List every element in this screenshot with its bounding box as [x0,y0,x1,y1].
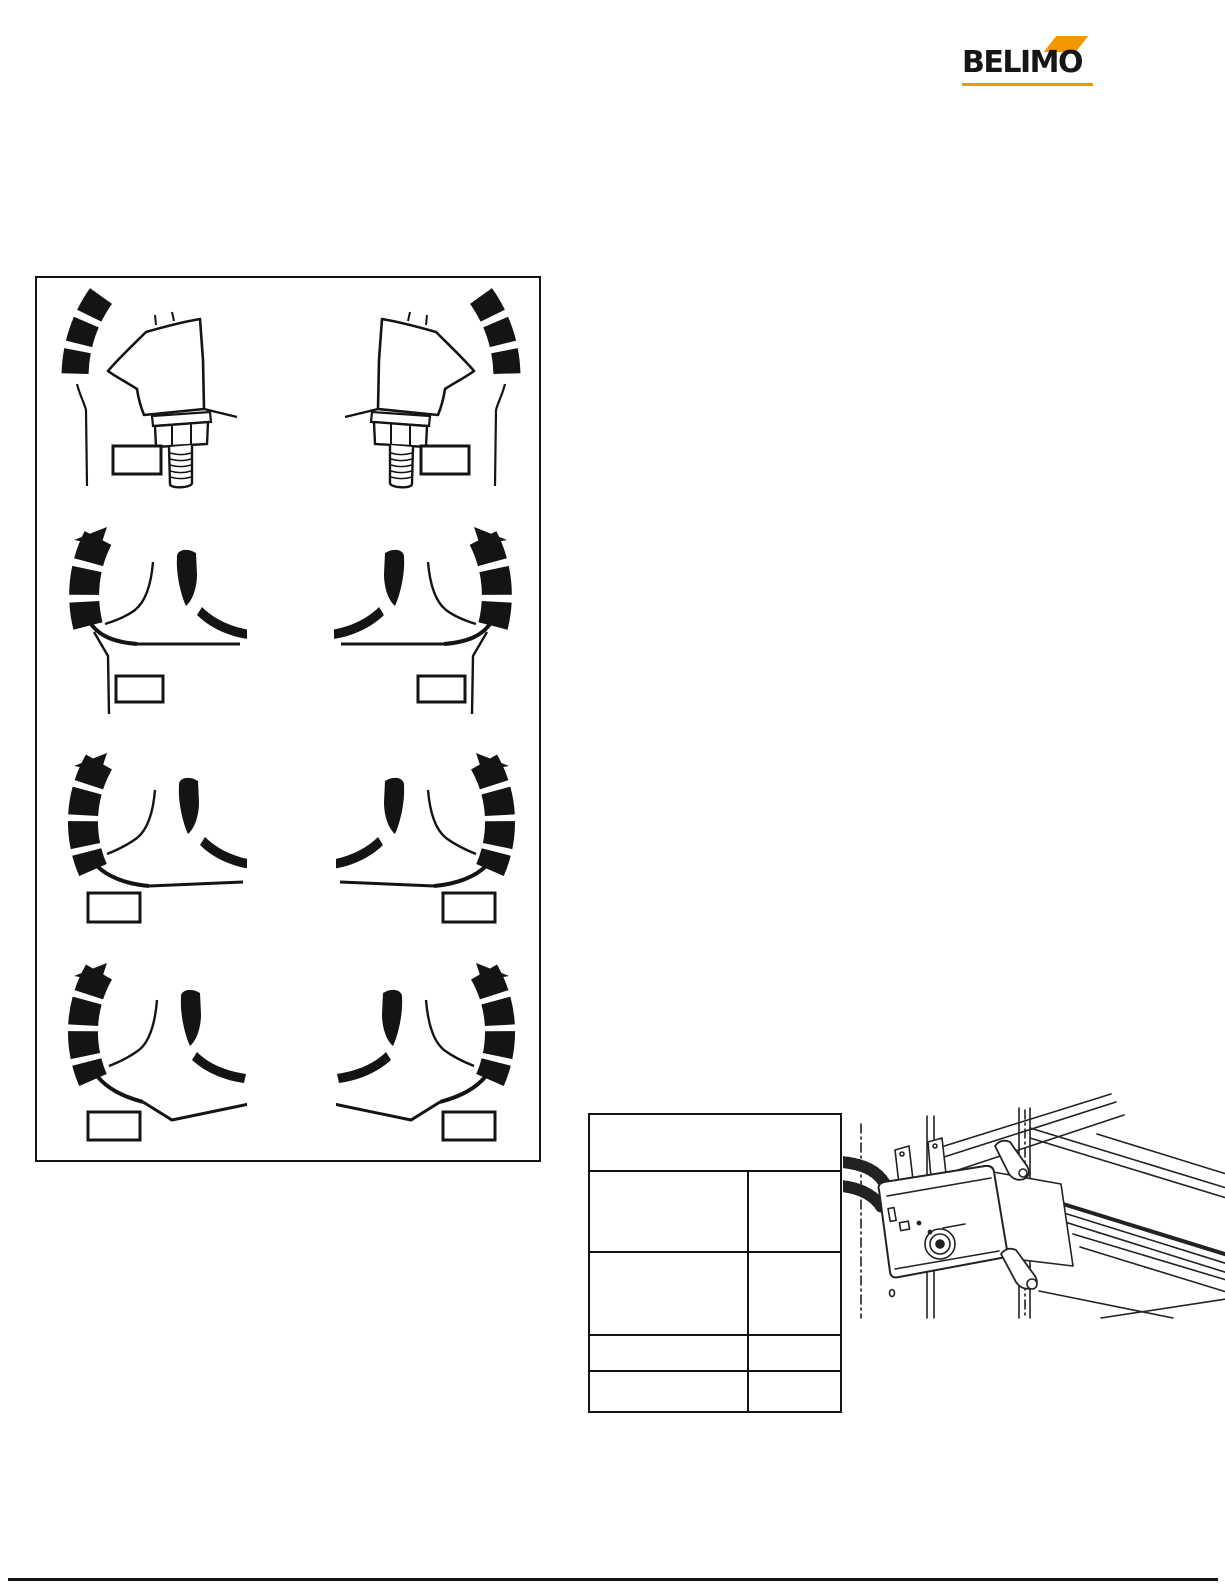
table-cell [589,1335,748,1371]
table-row [589,1371,841,1412]
scale-pointer-diagram-row2-right [334,516,524,721]
logo-underline [962,83,1093,86]
scale-pointer-diagram-row3-left [57,742,247,947]
table-cell [748,1335,841,1371]
table-cell [589,1371,748,1412]
spec-table [588,1113,842,1413]
table-header-cell [589,1114,841,1171]
scale-pointer-diagram-row4-right [336,952,526,1157]
actuator-mounting-illustration [843,1086,1225,1321]
table-cell [589,1171,748,1252]
table-cell [748,1252,841,1335]
scale-pointer-diagram-row2-left [57,516,247,721]
table-row [589,1114,841,1171]
scale-pointer-diagram-row3-right [336,742,526,947]
table-row [589,1252,841,1335]
table-cell [589,1252,748,1335]
table-cell [748,1171,841,1252]
scale-pointer-diagram-row4-left [57,952,247,1157]
document-page: BELIMO [0,0,1225,1585]
footer-rule [8,1578,1218,1581]
logo-wordmark: BELIMO [962,48,1082,78]
clamp-bolt-diagram-row1-right [332,288,522,493]
clamp-position-diagram-panel [35,276,541,1162]
table-row [589,1171,841,1252]
table-row [589,1335,841,1371]
clamp-bolt-diagram-row1-left [60,288,250,493]
table-cell [748,1371,841,1412]
belimo-logo: BELIMO [962,28,1102,90]
